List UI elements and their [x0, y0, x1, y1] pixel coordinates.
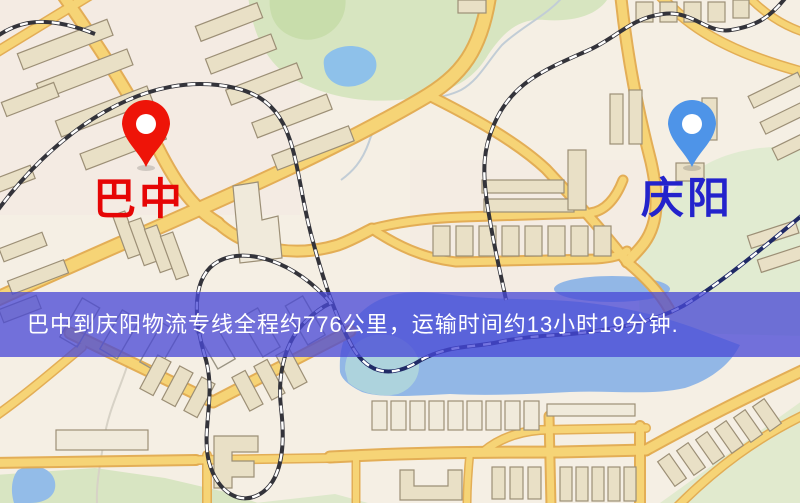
- map-canvas[interactable]: [0, 0, 800, 503]
- pin-hole: [682, 114, 702, 134]
- city-label-qingyang: 庆阳: [641, 178, 733, 221]
- route-info-text: 巴中到庆阳物流专线全程约776公里，运输时间约13小时19分钟.: [27, 307, 679, 339]
- lake: [12, 466, 55, 503]
- route-info-banner: 巴中到庆阳物流专线全程约776公里，运输时间约13小时19分钟.: [0, 292, 800, 357]
- map-screenshot: 巴中到庆阳物流专线全程约776公里，运输时间约13小时19分钟. 巴中 庆阳: [0, 0, 800, 503]
- city-label-bazhong: 巴中: [93, 179, 185, 222]
- pin-hole: [136, 114, 156, 134]
